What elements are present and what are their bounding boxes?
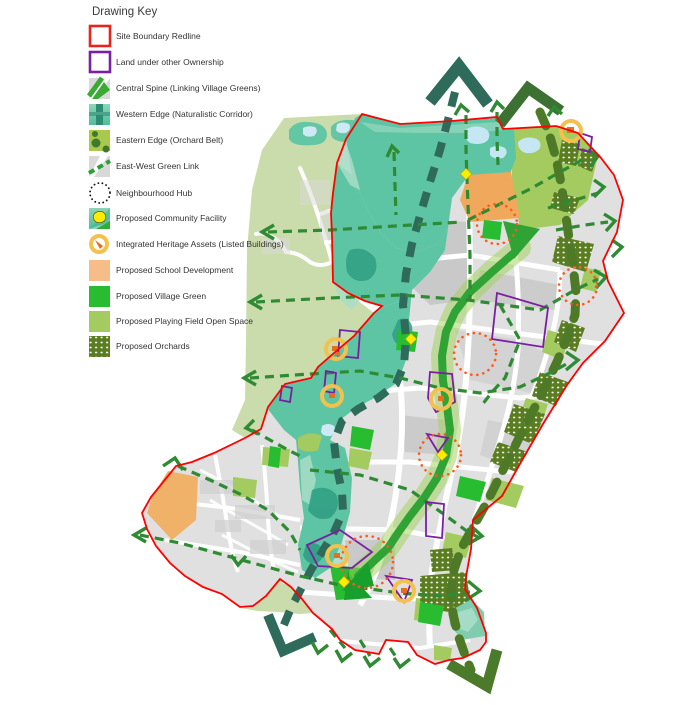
svg-text:Central Spine (Linking Village: Central Spine (Linking Village Greens) (116, 83, 261, 93)
svg-text:Proposed Orchards: Proposed Orchards (116, 341, 190, 351)
svg-text:Neighbourhood Hub: Neighbourhood Hub (116, 188, 192, 198)
svg-text:Proposed Playing Field Open Sp: Proposed Playing Field Open Space (116, 316, 253, 326)
svg-text:Eastern Edge (Orchard Belt): Eastern Edge (Orchard Belt) (116, 135, 223, 145)
svg-text:Western Edge (Naturalistic Cor: Western Edge (Naturalistic Corridor) (116, 109, 253, 119)
svg-text:Site Boundary Redline: Site Boundary Redline (116, 31, 201, 41)
svg-text:East-West Green Link: East-West Green Link (116, 161, 200, 171)
svg-text:Integrated Heritage Assets (Li: Integrated Heritage Assets (Listed Build… (116, 239, 284, 249)
svg-text:Proposed Village Green: Proposed Village Green (116, 291, 206, 301)
svg-text:Proposed Community Facility: Proposed Community Facility (116, 213, 227, 223)
svg-text:Land under other Ownership: Land under other Ownership (116, 57, 224, 67)
svg-text:Proposed School Development: Proposed School Development (116, 265, 234, 275)
svg-text:Drawing Key: Drawing Key (92, 6, 157, 18)
